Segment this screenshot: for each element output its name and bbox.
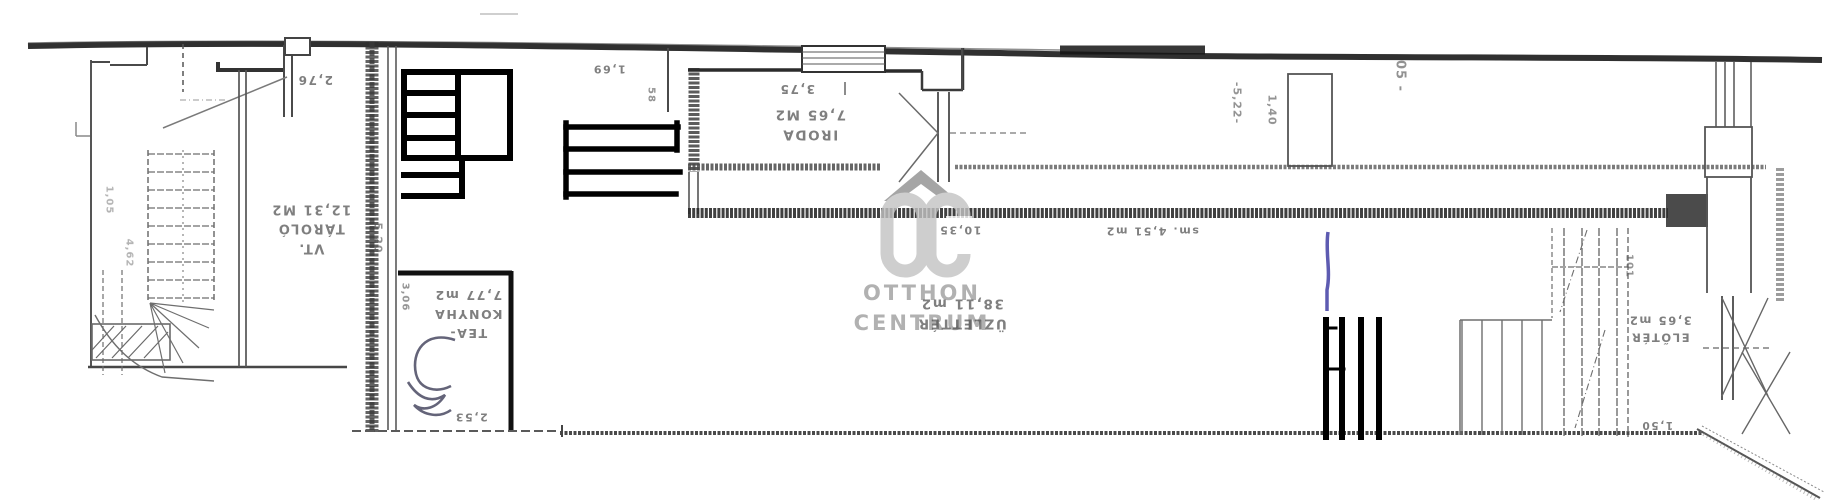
- dim-corridor-width: 1,40: [1266, 94, 1279, 125]
- dim-iroda-width: 3,75: [779, 80, 815, 98]
- room-label-tea-konyha: TEA- KONYHA 7,77 m2: [434, 286, 503, 342]
- room-label-eloter: ELŐTÉR 3,65 m2: [1628, 311, 1692, 346]
- dim-corridor-length: -5,22-: [1231, 82, 1244, 124]
- dim-tea-konyha-bottom: 2,53: [454, 408, 488, 425]
- dim-tarolo-depth: 5,20: [372, 222, 385, 253]
- room-label-uzletter: ÜZLETTÉR 38,11 m2: [917, 293, 1007, 334]
- dim-left-door: 2,76: [297, 71, 333, 89]
- floorplan-scan: OTTHON CENTRUM VT. TÁROLÓ 12,31 M2 TEA- …: [0, 0, 1842, 500]
- dim-left-stair-width: 1,05: [104, 186, 115, 215]
- dim-tea-konyha-top: 3,06: [400, 283, 411, 312]
- dim-eloter-width: 1,50: [1641, 416, 1673, 432]
- room-label-tarolo: VT. TÁROLÓ 12,31 M2: [271, 199, 351, 258]
- room-label-hallway: sm. 4,51 m2: [1105, 222, 1199, 239]
- dim-left-stair-height: 4,62: [124, 239, 135, 268]
- dim-hall-width: 1,69: [592, 60, 626, 77]
- dim-uzletter-length: 10,35: [939, 221, 982, 238]
- room-label-iroda: IRODA 7,65 M2: [774, 104, 846, 145]
- dim-top-right: 05 -: [1393, 60, 1408, 92]
- dim-stair-width: 101: [1624, 254, 1635, 278]
- dim-hall-small: 58: [646, 87, 657, 103]
